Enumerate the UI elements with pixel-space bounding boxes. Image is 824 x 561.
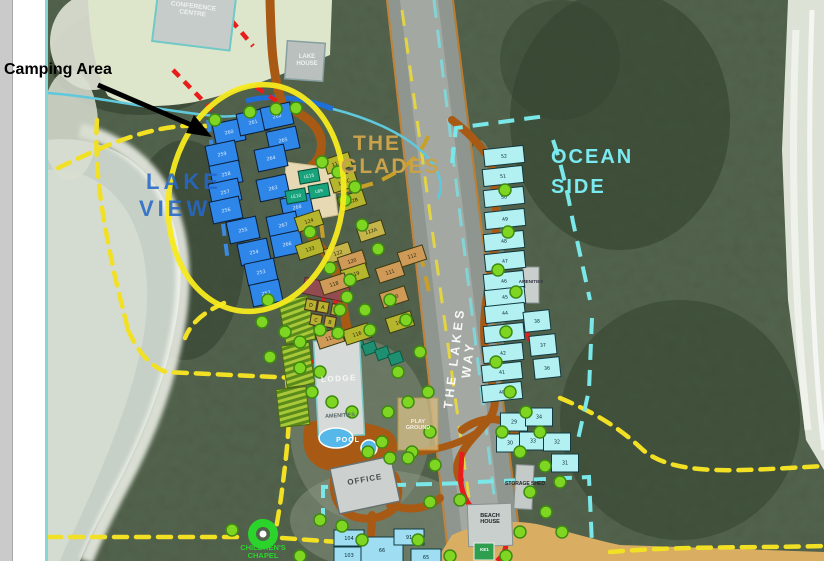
- tree-icon: [429, 459, 441, 471]
- tree-icon: [382, 406, 394, 418]
- lot-number: 104: [344, 536, 354, 542]
- lot-number: 51: [500, 173, 507, 180]
- tree-icon: [524, 486, 536, 498]
- lot-44: 44: [484, 302, 526, 323]
- lot-number: 46: [501, 278, 508, 285]
- tree-icon: [414, 346, 426, 358]
- tree-icon: [314, 366, 326, 378]
- lot-number: 91: [406, 535, 412, 541]
- tree-icon: [540, 506, 552, 518]
- app-side-strip: [0, 0, 13, 561]
- lot-number: 47: [502, 258, 509, 265]
- tree-icon: [384, 452, 396, 464]
- tree-icon: [500, 550, 512, 561]
- lot-number: 66: [379, 548, 385, 554]
- lot-38: 38: [523, 310, 551, 333]
- tree-icon: [359, 304, 371, 316]
- lot-number: 65: [423, 555, 429, 561]
- lot-D: D: [305, 299, 318, 312]
- tree-icon: [306, 386, 318, 398]
- tree-icon: [356, 534, 368, 546]
- tree-icon: [402, 452, 414, 464]
- tree-icon: [346, 406, 358, 418]
- lot-number: 103: [344, 553, 354, 559]
- tree-icon: [534, 426, 546, 438]
- lot-103: 103: [334, 547, 364, 561]
- tree-icon: [294, 336, 306, 348]
- lot-number: 36: [544, 365, 551, 372]
- lot-number: 48: [501, 238, 508, 245]
- tree-icon: [492, 264, 504, 276]
- tree-icon: [510, 286, 522, 298]
- tree-icon: [424, 426, 436, 438]
- tree-icon: [209, 114, 221, 126]
- lot-number: 38: [534, 318, 541, 325]
- tree-icon: [362, 446, 374, 458]
- lot-number: 45: [502, 294, 509, 301]
- lot-number: 34: [536, 415, 542, 421]
- tree-icon: [356, 219, 368, 231]
- tree-icon: [402, 396, 414, 408]
- tree-icon: [392, 366, 404, 378]
- tree-icon: [304, 226, 316, 238]
- tree-icon: [332, 327, 344, 339]
- tree-icon: [539, 460, 551, 472]
- tree-icon: [294, 362, 306, 374]
- document-page: 2602612622592582572562552542532522652642…: [0, 0, 824, 561]
- lot-number: 49: [502, 216, 509, 223]
- tree-icon: [500, 326, 512, 338]
- lot-number: 30: [507, 441, 513, 447]
- lot-51: 51: [482, 165, 524, 186]
- pool-shape: [319, 428, 353, 448]
- lot-number: 31: [562, 461, 568, 467]
- lodge-building: [314, 339, 365, 437]
- beach-house-building: [467, 503, 512, 547]
- tree-icon: [400, 314, 412, 326]
- tree-icon: [514, 446, 526, 458]
- tree-icon: [244, 106, 256, 118]
- tree-icon: [496, 426, 508, 438]
- tree-icon: [444, 550, 456, 561]
- conference-centre-building: [152, 0, 236, 51]
- tree-icon: [384, 294, 396, 306]
- tree-icon: [316, 156, 328, 168]
- tree-icon: [364, 324, 376, 336]
- site-map: 2602612622592582572562552542532522652642…: [0, 0, 824, 561]
- tree-icon: [422, 386, 434, 398]
- tree-icon: [270, 103, 282, 115]
- tree-icon: [256, 316, 268, 328]
- lot-number: 37: [540, 342, 547, 349]
- lot-number: 42: [500, 350, 507, 357]
- tree-icon: [376, 436, 388, 448]
- lot-A: A: [317, 301, 330, 314]
- tree-icon: [372, 243, 384, 255]
- tree-icon: [314, 514, 326, 526]
- tree-icon: [412, 534, 424, 546]
- lot-32: 32: [544, 433, 571, 451]
- tree-icon: [294, 550, 306, 561]
- lot-number: 44: [502, 310, 509, 317]
- lot-52: 52: [483, 145, 525, 166]
- page-margin: [13, 0, 45, 561]
- tree-icon: [502, 226, 514, 238]
- tree-icon: [490, 356, 502, 368]
- tree-icon: [326, 396, 338, 408]
- tree-icon: [556, 526, 568, 538]
- tree-icon: [264, 351, 276, 363]
- tree-icon: [514, 526, 526, 538]
- lot-37: 37: [529, 334, 557, 357]
- tree-icon: [262, 294, 274, 306]
- tree-icon: [454, 494, 466, 506]
- lot-L69: L69: [308, 183, 330, 199]
- tree-icon: [520, 406, 532, 418]
- lot-number: 41: [499, 369, 506, 376]
- tree-icon: [554, 476, 566, 488]
- lot-number: 32: [554, 440, 560, 446]
- tree-icon: [226, 524, 238, 536]
- court-area: [474, 543, 494, 560]
- lot-number: 52: [501, 153, 508, 160]
- tree-icon: [344, 274, 356, 286]
- lot-36: 36: [533, 357, 561, 380]
- lot-LE15: LE15: [298, 168, 320, 184]
- tree-icon: [504, 386, 516, 398]
- tree-icon: [424, 496, 436, 508]
- tree-icon: [336, 520, 348, 532]
- lot-47: 47: [484, 250, 526, 271]
- tree-icon: [341, 291, 353, 303]
- lot-31: 31: [552, 454, 579, 472]
- lot-number: 29: [511, 420, 517, 426]
- tree-icon: [290, 102, 302, 114]
- tree-icon: [279, 326, 291, 338]
- lake-house-building: [285, 41, 326, 82]
- tree-icon: [349, 181, 361, 193]
- tree-icon: [499, 184, 511, 196]
- map-border: [45, 0, 48, 561]
- tree-icon: [314, 324, 326, 336]
- tree-icon: [334, 304, 346, 316]
- lot-65: 65: [411, 549, 441, 561]
- lot-LE10: LE10: [285, 188, 307, 204]
- lot-number: 33: [530, 439, 536, 445]
- lot-42: 42: [482, 342, 524, 363]
